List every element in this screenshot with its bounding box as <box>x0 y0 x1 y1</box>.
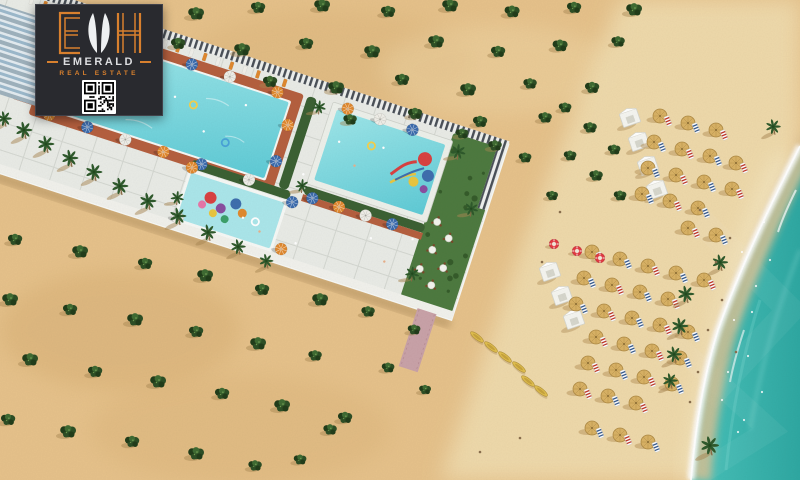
brand-dash-left <box>47 61 58 63</box>
logo-brand-row: EMERALD <box>47 56 151 68</box>
logo-leaf-m <box>88 13 109 53</box>
brand-dash-right <box>140 61 151 63</box>
logo-monogram-emh <box>52 10 146 56</box>
brand-name: EMERALD <box>63 56 135 68</box>
brand-tagline: REAL ESTATE <box>59 70 138 77</box>
emerald-real-estate-logo: EMH EMERALD REAL ESTATE <box>35 4 163 116</box>
resort-aerial-render: EMH EMERALD REAL ESTATE <box>0 0 800 480</box>
qr-code-icon <box>82 80 116 114</box>
